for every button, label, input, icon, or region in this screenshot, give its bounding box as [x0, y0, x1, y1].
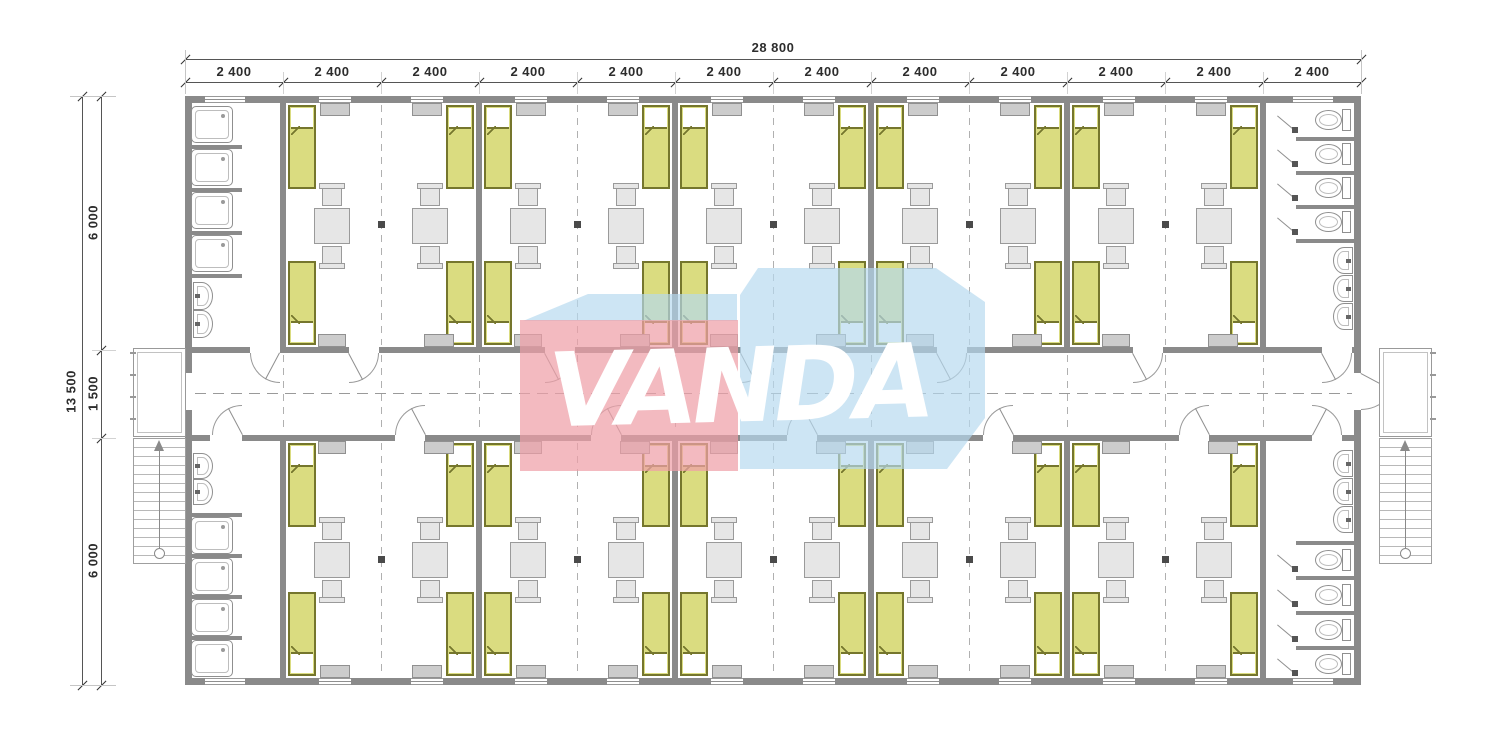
chair-seat	[322, 580, 342, 598]
toilet-tank	[1342, 177, 1351, 199]
stall-door-hinge	[1292, 670, 1298, 676]
bed	[1230, 592, 1258, 676]
stair-guideline	[159, 450, 160, 550]
stall-partition	[1296, 541, 1354, 545]
blanket-fold	[487, 126, 496, 135]
sink-tap	[1346, 315, 1351, 319]
bed	[1072, 443, 1100, 527]
module-joint-marker	[966, 221, 973, 228]
stair-guideline	[1405, 450, 1406, 550]
bed	[1034, 443, 1062, 527]
shower-drain	[221, 648, 225, 652]
dim-extension	[283, 72, 284, 94]
stair-start-circle	[1400, 548, 1411, 559]
module-joint-marker	[1162, 556, 1169, 563]
bed	[642, 592, 670, 676]
stall-door-hinge	[1292, 127, 1298, 133]
window-glazing	[515, 99, 547, 100]
table	[706, 208, 742, 244]
chair-seat	[420, 246, 440, 264]
bed	[1230, 105, 1258, 189]
chair-seat	[1106, 522, 1126, 540]
dim-extension	[1067, 72, 1068, 94]
bed	[1230, 261, 1258, 345]
window-glazing	[319, 99, 351, 100]
window-glazing	[411, 99, 443, 100]
chair-seat	[420, 188, 440, 206]
chair	[417, 263, 443, 269]
sink	[193, 310, 213, 338]
stall-partition	[1296, 646, 1354, 650]
blanket-fold	[1037, 464, 1046, 473]
toilet-tank	[1342, 109, 1351, 131]
window-glazing	[1195, 681, 1227, 682]
window-glazing	[1103, 681, 1135, 682]
chair	[1005, 597, 1031, 603]
blanket-fold	[683, 646, 692, 655]
watermark-logo-text: VANDA	[540, 329, 977, 444]
blanket-fold	[291, 315, 300, 324]
toilet-bowl-inner	[1319, 554, 1338, 566]
chair-seat	[1008, 522, 1028, 540]
cabinet	[424, 441, 454, 454]
dim-bay-label: 2 400	[194, 64, 274, 79]
sink	[1333, 275, 1353, 302]
cabinet	[516, 665, 546, 678]
toilet-tank	[1342, 143, 1351, 165]
dim-extension	[1361, 50, 1362, 94]
dim-extension	[969, 72, 970, 94]
table	[1196, 208, 1232, 244]
blanket-fold	[879, 646, 888, 655]
dim-extension	[381, 72, 382, 94]
dim-bay-label: 2 400	[292, 64, 372, 79]
corridor-axis-dashed	[1165, 355, 1166, 433]
watermark-box-strip	[523, 294, 737, 321]
chair-seat	[1204, 580, 1224, 598]
chair	[711, 263, 737, 269]
blanket-fold	[1233, 315, 1242, 324]
dim-extension	[1165, 72, 1166, 94]
window-glazing	[515, 681, 547, 682]
window-glazing	[803, 99, 835, 100]
module-joint-marker	[770, 556, 777, 563]
toilet-tank	[1342, 619, 1351, 641]
blanket-fold	[487, 646, 496, 655]
table	[804, 542, 840, 578]
sink	[193, 479, 213, 505]
dim-segment-label: 6 000	[86, 192, 101, 254]
cabinet	[1104, 103, 1134, 116]
chair-seat	[910, 188, 930, 206]
table	[1196, 542, 1232, 578]
table	[608, 208, 644, 244]
sink	[1333, 450, 1353, 477]
shower-drain	[221, 157, 225, 161]
shower-partition	[192, 554, 242, 558]
porch-post	[130, 418, 136, 420]
entry-porch	[133, 348, 186, 437]
chair	[1201, 263, 1227, 269]
stall-door-hinge	[1292, 601, 1298, 607]
partition-wall	[1064, 103, 1070, 347]
toilet-bowl	[1315, 585, 1342, 605]
chair-seat	[322, 246, 342, 264]
bed	[838, 105, 866, 189]
toilet-bowl-inner	[1319, 114, 1338, 126]
table	[510, 208, 546, 244]
partition-wall	[1064, 441, 1070, 678]
cabinet	[318, 441, 346, 454]
shower-drain	[221, 525, 225, 529]
dim-extension	[773, 72, 774, 94]
table	[804, 208, 840, 244]
sink-tap	[195, 294, 200, 298]
porch-post	[130, 352, 136, 354]
window-glazing	[1293, 681, 1333, 682]
bed	[1230, 443, 1258, 527]
stall-door-hinge	[1292, 161, 1298, 167]
cabinet	[1012, 334, 1042, 347]
exterior-wall-top	[185, 96, 1361, 103]
bed-pillow	[291, 321, 313, 342]
shower-tray	[191, 517, 233, 554]
bed-pillow	[1075, 652, 1097, 673]
shower-tray	[191, 235, 233, 272]
window-glazing	[1293, 99, 1333, 100]
blanket-fold	[1233, 464, 1242, 473]
module-joint-marker	[378, 221, 385, 228]
window-glazing	[1103, 99, 1135, 100]
bed-pillow	[1075, 321, 1097, 342]
toilet-tank	[1342, 584, 1351, 606]
bed-pillow	[879, 652, 901, 673]
dim-bay-label: 2 400	[978, 64, 1058, 79]
stair-direction-arrow	[154, 440, 164, 451]
shower-partition	[192, 145, 242, 149]
chair-seat	[910, 580, 930, 598]
dim-bay-label: 2 400	[782, 64, 862, 79]
sink-tap	[1346, 259, 1351, 263]
window-glazing	[411, 681, 443, 682]
bed-pillow	[487, 652, 509, 673]
toilet-bowl	[1315, 110, 1342, 130]
dim-extension	[577, 72, 578, 94]
sink-tap	[195, 490, 200, 494]
dim-extension	[1263, 72, 1264, 94]
dimension-line-total-left	[82, 96, 83, 685]
shower-drain	[221, 200, 225, 204]
blanket-fold	[1075, 315, 1084, 324]
cabinet	[1196, 103, 1226, 116]
bed	[680, 105, 708, 189]
bed-pillow	[645, 652, 667, 673]
table	[706, 542, 742, 578]
chair-seat	[420, 580, 440, 598]
chair-seat	[812, 522, 832, 540]
bed-pillow	[1233, 652, 1255, 673]
dim-bay-label: 2 400	[390, 64, 470, 79]
porch-inner-line	[1383, 352, 1428, 433]
blanket-fold	[487, 315, 496, 324]
cabinet	[608, 103, 638, 116]
chair	[1201, 597, 1227, 603]
toilet-bowl	[1315, 144, 1342, 164]
table	[902, 542, 938, 578]
door-swing-arc	[212, 405, 242, 435]
porch-inner-line	[137, 352, 182, 433]
corridor-axis-dashed	[1067, 355, 1068, 433]
door-swing-arc	[1133, 353, 1163, 383]
bed	[642, 105, 670, 189]
door-swing-arc	[983, 405, 1013, 435]
table	[510, 542, 546, 578]
chair-seat	[714, 580, 734, 598]
chair	[515, 597, 541, 603]
cabinet	[424, 334, 454, 347]
chair-seat	[518, 580, 538, 598]
toilet-bowl-inner	[1319, 216, 1338, 228]
sink	[193, 453, 213, 479]
corridor-wall-bottom	[1342, 435, 1354, 441]
blanket-fold	[1075, 464, 1084, 473]
chair	[613, 597, 639, 603]
chair-seat	[1204, 246, 1224, 264]
toilet-bowl	[1315, 212, 1342, 232]
blanket-fold	[841, 126, 850, 135]
bed	[1034, 105, 1062, 189]
chair-seat	[420, 522, 440, 540]
blanket-fold	[449, 646, 458, 655]
shower-partition	[192, 636, 242, 640]
bed	[680, 592, 708, 676]
chair	[711, 597, 737, 603]
chair	[515, 263, 541, 269]
sink-tap	[195, 322, 200, 326]
chair-seat	[714, 246, 734, 264]
blanket-fold	[879, 126, 888, 135]
porch-post	[130, 396, 136, 398]
sink	[1333, 506, 1353, 533]
chair-seat	[518, 246, 538, 264]
bed	[446, 261, 474, 345]
floor-plan-canvas: 2 4002 4002 4002 4002 4002 4002 4002 400…	[0, 0, 1500, 736]
bed-pillow	[449, 652, 471, 673]
exterior-wall-bottom	[185, 678, 1361, 685]
toilet-bowl-inner	[1319, 658, 1338, 670]
stall-door-hinge	[1292, 229, 1298, 235]
chair-seat	[1106, 580, 1126, 598]
bed-pillow	[1037, 652, 1059, 673]
window-glazing	[1195, 99, 1227, 100]
bed	[876, 105, 904, 189]
chair-seat	[616, 188, 636, 206]
table	[314, 208, 350, 244]
cabinet	[320, 103, 350, 116]
window-glazing	[607, 681, 639, 682]
blanket-fold	[1075, 126, 1084, 135]
blanket-fold	[449, 126, 458, 135]
window-glazing	[607, 99, 639, 100]
bed	[484, 443, 512, 527]
bed-pillow	[291, 652, 313, 673]
sink-tap	[1346, 490, 1351, 494]
corridor-wall-top	[1163, 347, 1322, 353]
toilet-bowl-inner	[1319, 148, 1338, 160]
blanket-fold	[645, 126, 654, 135]
dimension-total-width: 28 800	[713, 40, 833, 55]
bed	[1072, 261, 1100, 345]
porch-post	[1430, 352, 1436, 354]
bed	[1072, 592, 1100, 676]
sink-tap	[1346, 462, 1351, 466]
module-joint-marker	[574, 556, 581, 563]
corridor-axis-dashed	[381, 355, 382, 433]
dim-extension	[871, 72, 872, 94]
dim-segment-label: 1 500	[86, 363, 101, 425]
bed	[484, 261, 512, 345]
blanket-fold	[291, 126, 300, 135]
dim-segment-label: 6 000	[86, 530, 101, 592]
blanket-fold	[487, 464, 496, 473]
blanket-fold	[1037, 646, 1046, 655]
stall-door-hinge	[1292, 566, 1298, 572]
cabinet	[320, 665, 350, 678]
cabinet	[1104, 665, 1134, 678]
door-swing-arc	[395, 405, 425, 435]
chair-seat	[322, 188, 342, 206]
corridor-axis-dashed	[1263, 355, 1264, 433]
stall-door-hinge	[1292, 195, 1298, 201]
module-joint-marker	[966, 556, 973, 563]
blanket-fold	[1037, 126, 1046, 135]
dim-bay-label: 2 400	[1076, 64, 1156, 79]
table	[1000, 208, 1036, 244]
blanket-fold	[1233, 126, 1242, 135]
chair-seat	[1008, 580, 1028, 598]
porch-post	[130, 374, 136, 376]
cabinet	[412, 103, 442, 116]
toilet-tank	[1342, 211, 1351, 233]
shower-drain	[221, 607, 225, 611]
dim-extension	[479, 72, 480, 94]
dim-extension	[70, 96, 116, 97]
blanket-fold	[683, 126, 692, 135]
entry-porch	[1379, 348, 1432, 437]
chair-seat	[1106, 246, 1126, 264]
stall-partition	[1296, 611, 1354, 615]
bed	[1034, 261, 1062, 345]
chair-seat	[1204, 188, 1224, 206]
sink-tap	[1346, 518, 1351, 522]
chair-seat	[1008, 246, 1028, 264]
chair-seat	[910, 522, 930, 540]
door-opening	[1354, 373, 1361, 410]
chair-seat	[1106, 188, 1126, 206]
chair-seat	[910, 246, 930, 264]
blanket-fold	[1037, 315, 1046, 324]
cabinet	[1012, 441, 1042, 454]
stair-start-circle	[154, 548, 165, 559]
stall-partition	[1296, 205, 1354, 209]
cabinet	[608, 665, 638, 678]
bed	[1034, 592, 1062, 676]
sink-tap	[1346, 287, 1351, 291]
dim-extension	[185, 50, 186, 94]
chair-seat	[616, 580, 636, 598]
bed	[484, 105, 512, 189]
toilet-tank	[1342, 653, 1351, 675]
chair-seat	[518, 188, 538, 206]
dim-bay-label: 2 400	[488, 64, 568, 79]
sink	[193, 282, 213, 310]
cabinet	[1196, 665, 1226, 678]
chair-seat	[714, 188, 734, 206]
chair-seat	[714, 522, 734, 540]
bed	[288, 261, 316, 345]
toilet-bowl	[1315, 550, 1342, 570]
shower-partition	[192, 595, 242, 599]
corridor-wall-top	[192, 347, 250, 353]
partition-wall	[476, 441, 482, 678]
chair	[417, 597, 443, 603]
dim-bay-label: 2 400	[1272, 64, 1352, 79]
chair-seat	[322, 522, 342, 540]
dimension-line-segments-left	[101, 96, 102, 685]
chair	[319, 597, 345, 603]
window-glazing	[711, 99, 743, 100]
chair-seat	[518, 522, 538, 540]
bed-pillow	[683, 652, 705, 673]
bed	[288, 105, 316, 189]
partition-wall	[280, 441, 286, 678]
partition-wall	[1260, 103, 1266, 347]
dim-bay-label: 2 400	[880, 64, 960, 79]
blanket-fold	[291, 464, 300, 473]
window-glazing	[711, 681, 743, 682]
stall-partition	[1296, 137, 1354, 141]
shower-partition	[192, 274, 242, 278]
blanket-fold	[1075, 646, 1084, 655]
porch-post	[1430, 374, 1436, 376]
toilet-tank	[1342, 549, 1351, 571]
bed-pillow	[841, 652, 863, 673]
bed	[446, 592, 474, 676]
shower-partition	[192, 231, 242, 235]
toilet-bowl	[1315, 620, 1342, 640]
dimension-line-total-top	[185, 59, 1361, 60]
shower-tray	[191, 106, 233, 143]
chair-seat	[616, 246, 636, 264]
module-joint-marker	[770, 221, 777, 228]
partition-wall	[476, 103, 482, 347]
dim-extension	[92, 438, 116, 439]
stall-partition	[1296, 576, 1354, 580]
blanket-fold	[449, 464, 458, 473]
cabinet	[1208, 441, 1238, 454]
cabinet	[1102, 334, 1130, 347]
bed-pillow	[487, 321, 509, 342]
chair	[319, 263, 345, 269]
module-joint-marker	[574, 221, 581, 228]
table	[412, 208, 448, 244]
bed	[484, 592, 512, 676]
dim-extension	[675, 72, 676, 94]
bed	[446, 443, 474, 527]
chair	[809, 597, 835, 603]
module-joint-marker	[378, 556, 385, 563]
table	[314, 542, 350, 578]
